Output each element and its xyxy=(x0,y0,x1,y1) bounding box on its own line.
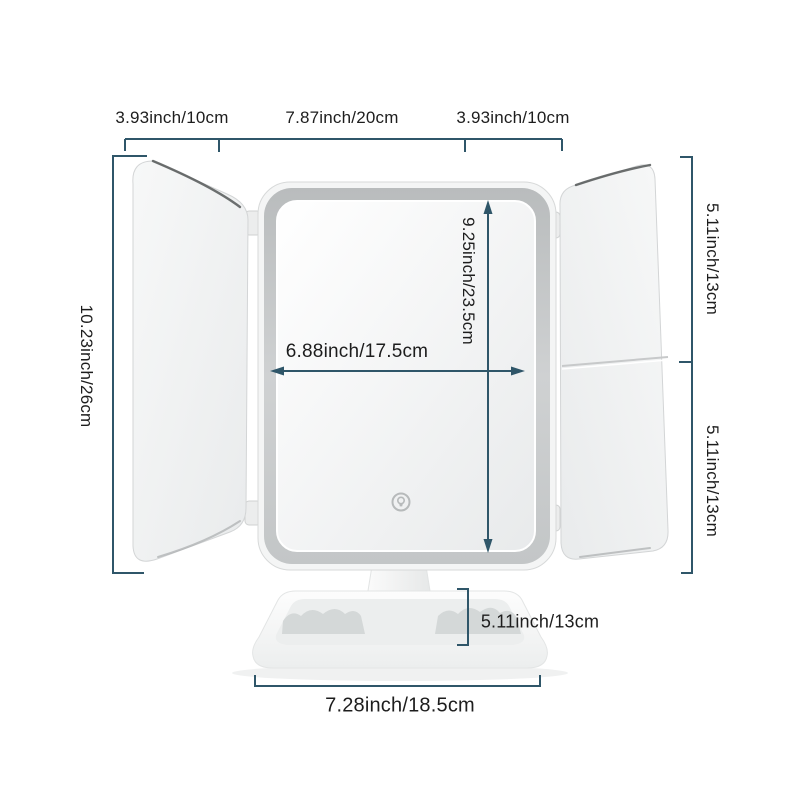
total-height-label: 10.23inch/26cm xyxy=(76,305,96,428)
mirror-height-label: 9.25inch/23.5cm xyxy=(458,217,478,345)
base-height-label: 5.11inch/13cm xyxy=(481,612,599,633)
base-width-label: 7.28inch/18.5cm xyxy=(325,695,475,718)
right-mirror-panel xyxy=(560,165,668,559)
right-height-bracket xyxy=(679,157,692,573)
top-left-width-label: 3.93inch/10cm xyxy=(115,108,228,128)
side-upper-height-label: 5.11inch/13cm xyxy=(702,203,722,315)
left-mirror-panel xyxy=(133,161,248,561)
center-mirror-glass xyxy=(277,201,535,551)
center-mirror-panel xyxy=(258,182,556,570)
mirror-width-label: 6.88inch/17.5cm xyxy=(286,341,428,363)
side-lower-height-label: 5.11inch/13cm xyxy=(702,425,722,537)
top-right-width-label: 3.93inch/10cm xyxy=(456,108,569,128)
product-dimension-diagram: 3.93inch/10cm 7.87inch/20cm 3.93inch/10c… xyxy=(0,0,800,800)
top-center-width-label: 7.87inch/20cm xyxy=(285,108,398,128)
left-panel-body xyxy=(133,161,248,561)
top-width-bracket xyxy=(125,139,562,152)
